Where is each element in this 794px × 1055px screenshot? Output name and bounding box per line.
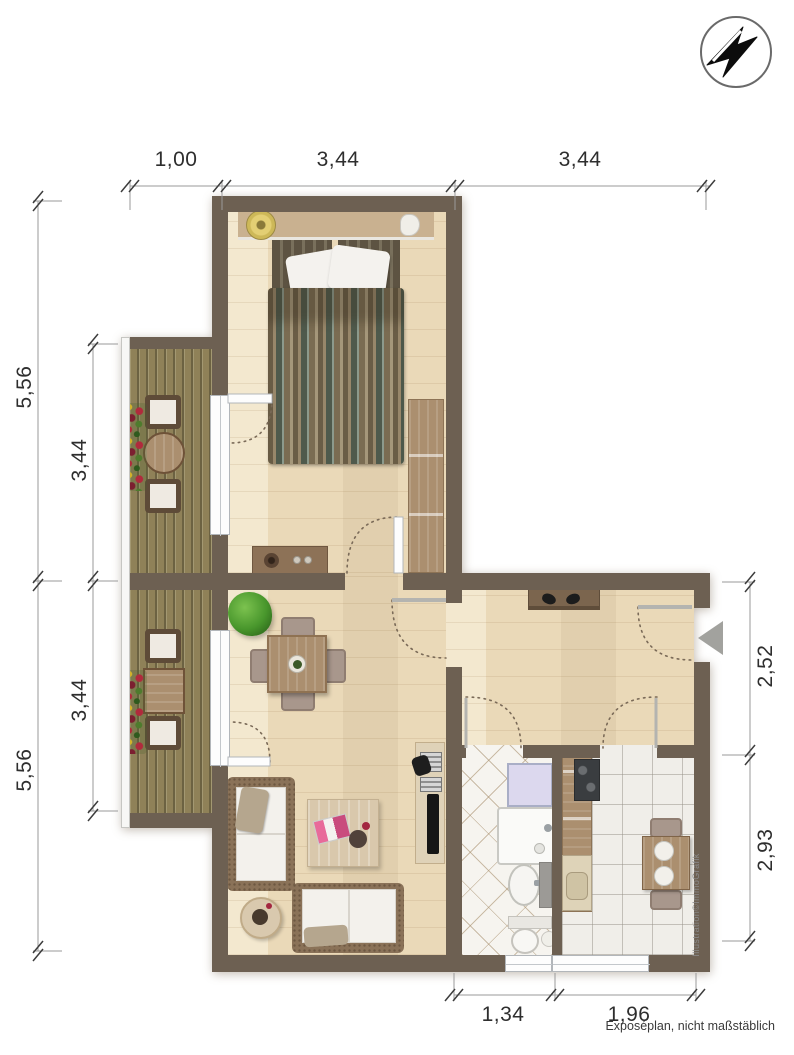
door-leaves: [228, 394, 692, 766]
dimension-ticks: [33, 180, 755, 1001]
dim-top-1: 1,00: [155, 148, 198, 172]
door-leaf-living-balcony: [228, 757, 270, 766]
dim-left-outer-1: 5,56: [13, 366, 37, 409]
dim-right-1: 2,52: [754, 645, 778, 688]
dim-left-inner-2: 3,44: [68, 679, 92, 722]
illustrator-credit: Illustration©ImmoGrafik: [691, 853, 701, 956]
door-leaf-bedroom-living: [394, 517, 403, 573]
dimension-chains: [33, 180, 755, 1001]
dim-top-2: 3,44: [317, 148, 360, 172]
door-arc-bathroom: [466, 697, 521, 748]
dimension-and-door-overlay: [0, 0, 794, 1055]
door-arc-living-balcony: [230, 722, 270, 762]
floorplan-canvas: 1,00 3,44 3,44 5,56 5,56 3,44 3,44 2,52 …: [0, 0, 794, 1055]
disclaimer-text: Exposéplan, nicht maßstäblich: [605, 1019, 775, 1033]
door-swing-arcs: [230, 399, 692, 762]
door-arc-bedroom-balcony: [230, 399, 272, 443]
door-leaf-bedroom-balcony: [228, 394, 272, 403]
door-arc-bedroom-living: [347, 517, 398, 573]
door-arc-living-hallway: [392, 600, 446, 658]
door-arc-entrance: [638, 607, 692, 660]
dim-bottom-1: 1,34: [482, 1003, 525, 1027]
door-arc-kitchen: [603, 697, 657, 748]
dim-left-inner-1: 3,44: [68, 439, 92, 482]
dim-top-3: 3,44: [559, 148, 602, 172]
dim-right-2: 2,93: [754, 829, 778, 872]
dim-left-outer-2: 5,56: [13, 749, 37, 792]
north-compass-icon: [697, 13, 775, 91]
